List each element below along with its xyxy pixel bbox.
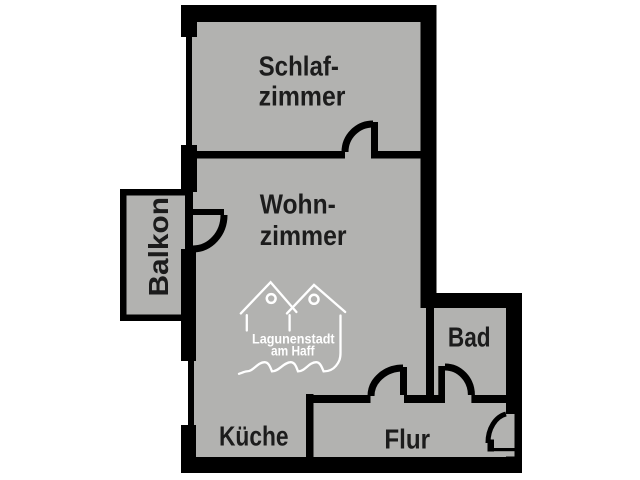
svg-text:am Haff: am Haff [271,343,315,359]
svg-text:Balkon: Balkon [144,197,175,296]
svg-text:Wohn-: Wohn- [260,188,336,220]
svg-text:Küche: Küche [219,422,289,453]
svg-text:Schlaf-: Schlaf- [259,50,339,82]
svg-text:zimmer: zimmer [260,220,347,252]
svg-text:Bad: Bad [448,322,491,353]
svg-text:zimmer: zimmer [259,80,346,112]
svg-text:Flur: Flur [384,423,430,455]
